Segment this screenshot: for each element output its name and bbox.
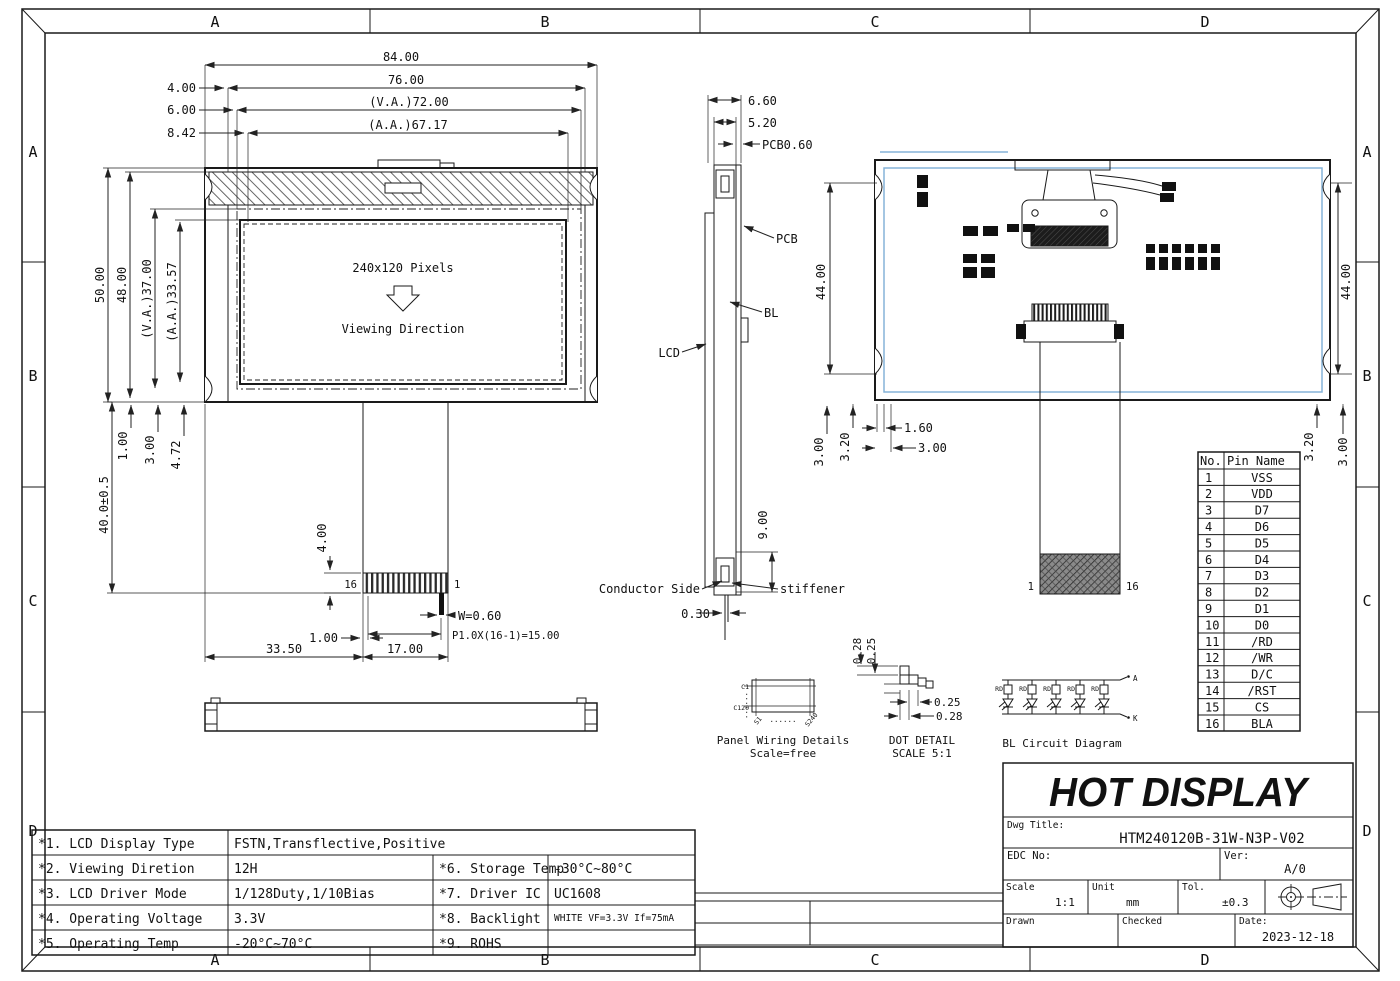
dim-thickness-total: 6.60	[748, 94, 777, 108]
zone-left-c: C	[28, 592, 37, 610]
pin-no: 3	[1205, 504, 1212, 518]
pin-no: 2	[1205, 487, 1212, 501]
pin-name: D7	[1255, 504, 1269, 518]
unit-label: Unit	[1092, 882, 1115, 893]
dim-pin-length: 4.00	[315, 524, 329, 553]
label-s1: S1	[752, 715, 763, 726]
ffc-clip-left	[1016, 324, 1026, 339]
dim-offset-1: 1.00	[116, 432, 130, 461]
dim-pin-width: W=0.60	[458, 609, 501, 623]
zone-left-d: D	[28, 822, 37, 840]
pin-no: 14	[1205, 684, 1219, 698]
spec-rows: *1. LCD Display Type FSTN,Transflective,…	[38, 837, 674, 952]
dwg-title-label: Dwg Title:	[1007, 820, 1064, 831]
side-tail	[725, 595, 728, 640]
zone-top-d: D	[1200, 13, 1209, 31]
pin-name: VSS	[1251, 471, 1273, 485]
bl-branch: RD	[1067, 680, 1085, 714]
spec-label: *6. Storage Temp	[439, 862, 564, 877]
s-dots: ......	[769, 715, 796, 724]
spec-label: *4. Operating Voltage	[38, 912, 203, 927]
anode-label: A	[1133, 674, 1138, 683]
panel-wiring-rect	[752, 680, 814, 712]
dim-offset-6: 6.00	[167, 103, 196, 117]
bottom-bar-details	[205, 703, 597, 731]
panel-wiring-title: Panel Wiring Details	[717, 734, 849, 747]
side-bl-tab	[741, 318, 748, 342]
pin-no: 16	[1205, 717, 1219, 731]
pin-name: /RD	[1251, 635, 1273, 649]
date-label: Date:	[1239, 916, 1268, 927]
side-view: 6.60 5.20 PCB0.60 PCB BL LCD 9.00 Conduc…	[599, 94, 845, 640]
scale-value: 1:1	[1055, 896, 1075, 909]
dim-height-48: 48.00	[115, 267, 129, 303]
spec-label: *7. Driver IC	[439, 887, 541, 902]
dim-33-5: 33.50	[266, 642, 302, 656]
pin-no: 10	[1205, 618, 1219, 632]
pin-name: D1	[1255, 602, 1269, 616]
pin-rows: 1VSS 2VDD 3D7 4D6 5D5 6D4 7D3 8D2 9D1 10…	[1205, 471, 1276, 731]
spec-value: 1/128Duty,1/10Bias	[234, 887, 375, 902]
zone-dividers	[22, 9, 1379, 971]
dim-back-1-6: 1.60	[904, 421, 933, 435]
back-outline	[875, 160, 1330, 400]
dim-dot-025-right: 0.25	[934, 696, 961, 709]
zone-bottom-a: A	[210, 951, 219, 969]
projection-symbol-icon	[1278, 884, 1347, 910]
label-stiffener: stiffener	[780, 582, 845, 596]
dim-tail-length: 40.0±0.5	[97, 476, 111, 534]
dim-stiffener-9: 9.00	[756, 511, 770, 540]
side-pcb-layer	[736, 165, 741, 595]
dot-detail: 0.28 0.25 0.25 0.28 DOT DETAIL SCALE 5:1	[851, 638, 963, 760]
spec-value: WHITE VF=3.3V If=75mA	[554, 913, 674, 924]
zone-right-d: D	[1362, 822, 1371, 840]
resistor-label: RD	[1091, 685, 1099, 693]
resistor-label: RD	[1067, 685, 1075, 693]
back-pin16-label: 16	[1126, 581, 1139, 593]
zone-top-c: C	[870, 13, 879, 31]
revision-cells	[695, 893, 1003, 945]
pin-name: D3	[1255, 569, 1269, 583]
bl-branches: RD RD RD RD RD	[995, 680, 1109, 714]
dim-back-3-left: 3.00	[812, 438, 826, 467]
dim-tail-offset-1: 1.00	[309, 631, 338, 645]
pin-no: 12	[1205, 651, 1219, 665]
pin-no: 13	[1205, 668, 1219, 682]
tol-value: ±0.3	[1222, 896, 1249, 909]
label-s240: S240	[803, 711, 819, 728]
spec-label: *2. Viewing Diretion	[38, 862, 195, 877]
dim-back-44-right: 44.00	[1339, 264, 1353, 300]
pin-col-name: Pin Name	[1227, 454, 1285, 468]
dim-va-width: (V.A.)72.00	[369, 95, 448, 109]
spec-value: -20°C~70°C	[234, 937, 312, 952]
zone-right-b: B	[1362, 367, 1371, 385]
spec-value: 12H	[234, 862, 257, 877]
drawing-frame: A B C D A B C D A B C D A B C D	[22, 9, 1379, 971]
ffc-connector-body	[1024, 321, 1116, 342]
dim-pin-pitch: P1.0X(16-1)=15.00	[452, 630, 559, 642]
spec-label: *1. LCD Display Type	[38, 837, 195, 852]
dim-va-height: (V.A.)37.00	[140, 259, 154, 338]
zone-right-a: A	[1362, 143, 1371, 161]
pin-no: 1	[1205, 471, 1212, 485]
dim-dot-028-right: 0.28	[936, 710, 963, 723]
pin-name: D2	[1255, 586, 1269, 600]
panel-wiring-lines	[744, 678, 816, 716]
screen-resolution-label: 240x120 Pixels	[352, 261, 453, 275]
bottom-bar-tab-right	[577, 698, 586, 703]
panel-wiring-detail: C1 ...... C120 S1 ...... S240 Panel Wiri…	[717, 678, 849, 760]
pin-name: D4	[1255, 553, 1269, 567]
viewing-direction-label: Viewing Direction	[342, 322, 465, 336]
ffc-clip-right	[1114, 324, 1124, 339]
label-c1: C1	[741, 683, 749, 691]
bl-circuit-diagram: A K RD RD RD RD RD BL Circuit Diagram	[995, 674, 1138, 750]
top-tab	[378, 160, 440, 168]
resistor-label: RD	[1019, 685, 1027, 693]
label-c120: C120	[733, 704, 749, 712]
pin-name: BLA	[1251, 717, 1273, 731]
pin-no: 9	[1205, 602, 1212, 616]
bl-branch: RD	[995, 680, 1013, 714]
pin-no: 6	[1205, 553, 1212, 567]
zone-left-a: A	[28, 143, 37, 161]
dim-0-3: 0.30	[681, 607, 710, 621]
date-value: 2023-12-18	[1262, 930, 1334, 944]
side-top-extension	[708, 95, 741, 166]
label-conductor-side: Conductor Side	[599, 582, 700, 596]
spec-label: *5. Operating Temp	[38, 937, 179, 952]
zone-top-b: B	[540, 13, 549, 31]
spec-label: *9. ROHS	[439, 937, 502, 952]
checked-label: Checked	[1122, 916, 1162, 927]
outer-border	[22, 9, 1379, 971]
tail-extension-line	[107, 402, 360, 593]
zone-bottom-c: C	[870, 951, 879, 969]
tol-label: Tol.	[1182, 882, 1205, 893]
label-bl: BL	[764, 306, 778, 320]
dim-pcb-thickness: PCB0.60	[762, 138, 813, 152]
pin-name: D0	[1255, 618, 1269, 632]
bl-branch: RD	[1091, 680, 1109, 714]
dim-offset-3: 3.00	[143, 436, 157, 465]
bottom-view	[205, 698, 597, 731]
side-lcd-layer	[705, 213, 714, 587]
spec-value: 3.3V	[234, 912, 265, 927]
pin1-label: 1	[454, 579, 460, 591]
spec-value: -30°C~80°C	[554, 862, 632, 877]
spec-label: *8. Backlight	[439, 912, 541, 927]
zone-bottom-d: D	[1200, 951, 1209, 969]
dim-dot-028-top: 0.28	[851, 638, 864, 665]
anode-terminal	[1127, 675, 1130, 678]
resistor-label: RD	[995, 685, 1003, 693]
dim-overall-width: 84.00	[383, 50, 419, 64]
bl-circuit-title: BL Circuit Diagram	[1002, 737, 1122, 750]
dim-dot-025-top: 0.25	[865, 638, 878, 665]
dim-thickness-5-2: 5.20	[748, 116, 777, 130]
fold-pad-2	[1160, 193, 1174, 202]
bl-rails	[1002, 677, 1127, 717]
pin-no: 7	[1205, 569, 1212, 583]
dim-back-3-right: 3.00	[1336, 438, 1350, 467]
pin-name: D/C	[1251, 668, 1273, 682]
dim-width-76: 76.00	[388, 73, 424, 87]
revision-cell-grid	[695, 893, 1003, 945]
company-name: HOT DISPLAY	[1049, 769, 1310, 815]
pin-no: 11	[1205, 635, 1219, 649]
pin-table: No. Pin Name 1VSS 2VDD 3D7 4D6 5D5 6D4 7…	[1198, 452, 1300, 731]
dot-detail-title: DOT DETAIL	[889, 734, 956, 747]
dot-detail-scale: SCALE 5:1	[892, 747, 952, 760]
pin-name: CS	[1255, 700, 1269, 714]
dim-offset-4-72: 4.72	[169, 441, 183, 470]
pin-comb	[363, 573, 448, 593]
pin-no: 15	[1205, 700, 1219, 714]
dwg-title-value: HTM240120B-31W-N3P-V02	[1119, 831, 1304, 847]
connector-contacts	[1031, 226, 1108, 246]
drawing-canvas: A B C D A B C D A B C D A B C D 240x120 …	[0, 0, 1400, 981]
ver-value: A/0	[1284, 862, 1306, 876]
cathode-label: K	[1133, 714, 1138, 723]
pin16-label: 16	[344, 579, 357, 591]
pin-name: D5	[1255, 536, 1269, 550]
side-body	[714, 165, 736, 595]
dim-back-3-2-left: 3.20	[838, 433, 852, 462]
bezel-slot	[385, 183, 421, 193]
pin-name: /WR	[1251, 651, 1273, 665]
title-block: HOT DISPLAY Dwg Title: HTM240120B-31W-N3…	[1003, 763, 1353, 947]
zone-right-c: C	[1362, 592, 1371, 610]
fpc-tail	[363, 402, 448, 573]
ver-label: Ver:	[1224, 850, 1249, 862]
label-pcb: PCB	[776, 232, 798, 246]
dim-17: 17.00	[387, 642, 423, 656]
dim-offset-4: 4.00	[167, 81, 196, 95]
bl-branch: RD	[1043, 680, 1061, 714]
pin-col-no: No.	[1200, 454, 1222, 468]
zone-left-b: B	[28, 367, 37, 385]
pin-name: VDD	[1251, 487, 1273, 501]
pin-no: 5	[1205, 536, 1212, 550]
engineering-drawing-page: A B C D A B C D A B C D A B C D 240x120 …	[0, 0, 1400, 981]
edc-no-label: EDC No:	[1007, 850, 1051, 862]
dim-back-3-bottom: 3.00	[918, 441, 947, 455]
pin1-extension	[439, 593, 444, 615]
spec-value: UC1608	[554, 887, 601, 902]
scale-label: Scale	[1006, 882, 1035, 893]
fold-pad-1	[1162, 182, 1176, 191]
panel-wiring-scale: Scale=free	[750, 747, 816, 760]
dim-back-44-left: 44.00	[814, 264, 828, 300]
dim-offset-8-42: 8.42	[167, 126, 196, 140]
ffc-connector-contacts	[1032, 304, 1108, 321]
spec-table: *1. LCD Display Type FSTN,Transflective,…	[32, 830, 695, 955]
back-view: 1 16 44.00 44.00 3.00 3.20 1.60 3.00 3.2…	[812, 152, 1353, 594]
drawn-label: Drawn	[1006, 916, 1035, 927]
spec-value: FSTN,Transflective,Positive	[234, 837, 445, 852]
unit-value: mm	[1126, 896, 1140, 909]
pin-no: 8	[1205, 586, 1212, 600]
bottom-bar-tab-left	[211, 698, 220, 703]
spec-label: *3. LCD Driver Mode	[38, 887, 187, 902]
pin-name: /RST	[1248, 684, 1277, 698]
dim-aa-width: (A.A.)67.17	[368, 118, 447, 132]
bottom-bar	[205, 703, 597, 731]
cathode-terminal	[1127, 716, 1130, 719]
dim-back-3-2-right: 3.20	[1302, 433, 1316, 462]
pin-name: D6	[1255, 520, 1269, 534]
dim-aa-height: (A.A.)33.57	[165, 262, 179, 341]
ffc-stiffener	[1040, 554, 1120, 594]
pin-no: 4	[1205, 520, 1212, 534]
bl-branch: RD	[1019, 680, 1037, 714]
dot-squares	[900, 666, 933, 688]
dim-overall-height: 50.00	[93, 267, 107, 303]
label-lcd: LCD	[658, 346, 680, 360]
back-pin1-label: 1	[1028, 581, 1034, 593]
resistor-label: RD	[1043, 685, 1051, 693]
side-top-block	[716, 170, 734, 198]
zone-top-a: A	[210, 13, 219, 31]
